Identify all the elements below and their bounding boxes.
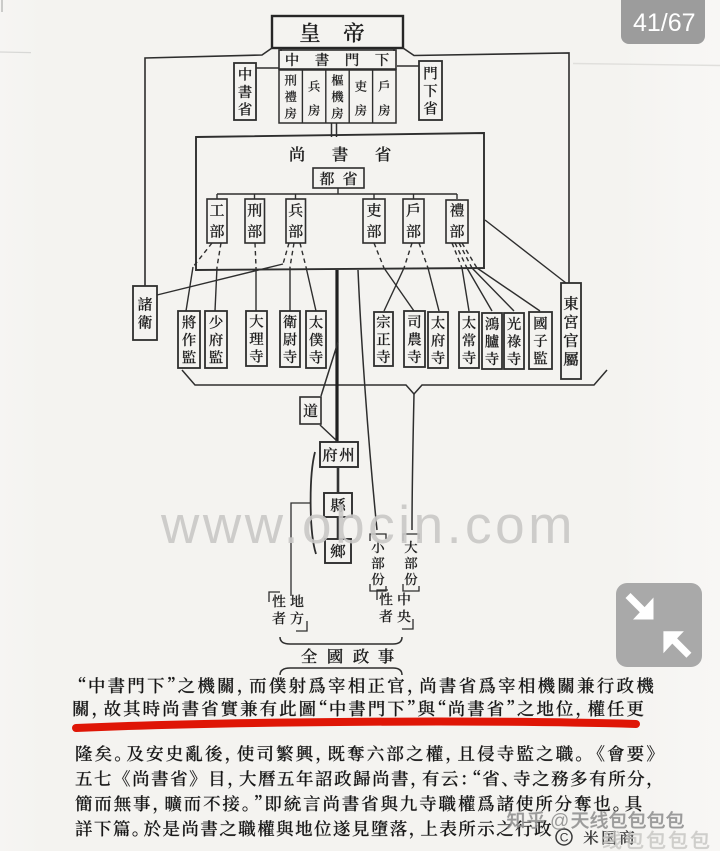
svg-text:@: @ (550, 811, 569, 832)
svg-text:41/67: 41/67 (633, 9, 696, 37)
svg-text:www.obcin.com: www.obcin.com (160, 496, 576, 555)
svg-text:C: C (560, 831, 569, 845)
